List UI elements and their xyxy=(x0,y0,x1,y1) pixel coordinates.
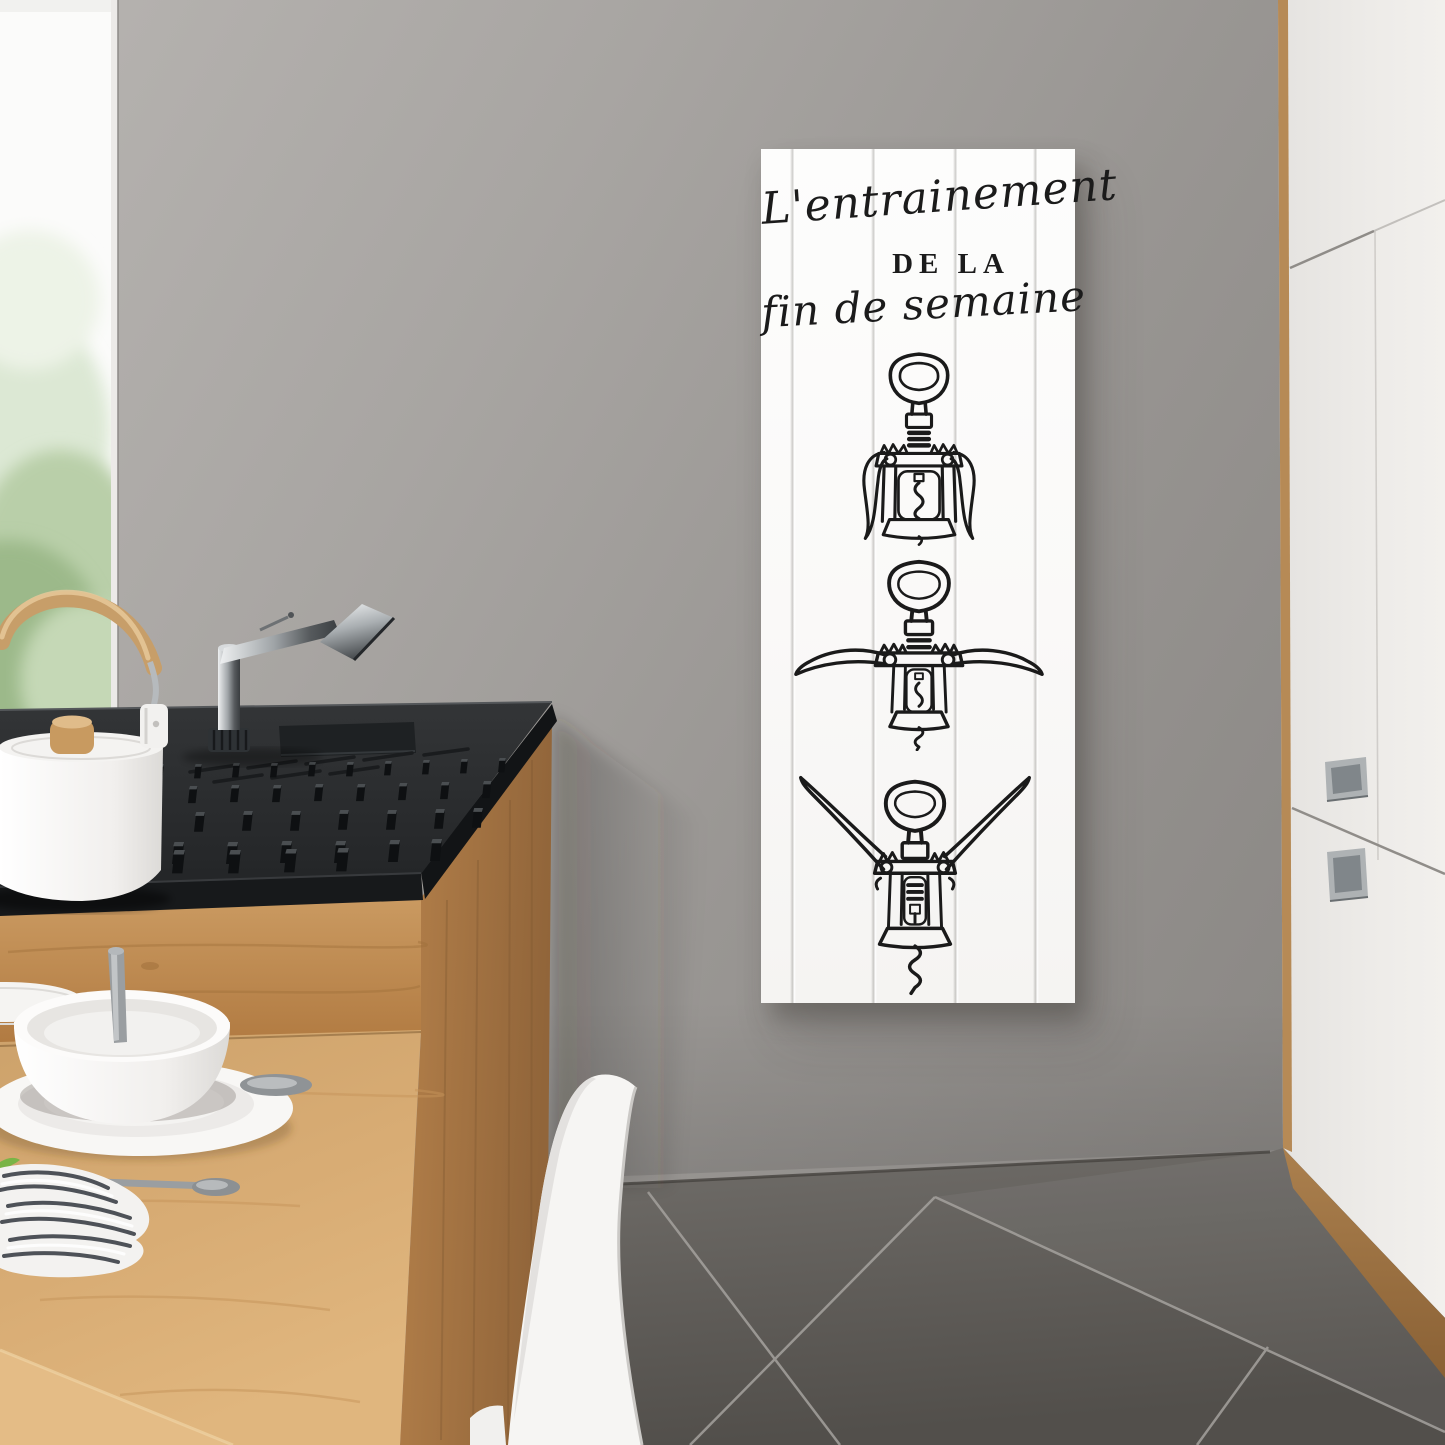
cabinet-handle-upper[interactable] xyxy=(1325,757,1368,801)
wall-art-sign: L'entrainement DE LA fin de semaine xyxy=(761,149,1075,1003)
spoon-beside-plate xyxy=(240,1074,312,1096)
kitchen-backdrop xyxy=(0,0,1445,1445)
corkscrew-wings-closed-illustration xyxy=(843,347,995,548)
tall-cabinets xyxy=(1278,0,1445,1318)
sign-title-line3: fin de semaine xyxy=(760,272,1076,337)
corkscrew-wings-half-raised-illustration xyxy=(793,557,1045,751)
corkscrew-wings-raised-illustration xyxy=(787,761,1043,1002)
cabinet-handle-lower[interactable] xyxy=(1327,848,1368,901)
sign-title-line1: L'entrainement xyxy=(760,162,1077,235)
kitchen-photo: L'entrainement DE LA fin de semaine xyxy=(0,0,1445,1445)
window-frame-side xyxy=(111,0,118,740)
window-frame-top xyxy=(0,0,118,12)
